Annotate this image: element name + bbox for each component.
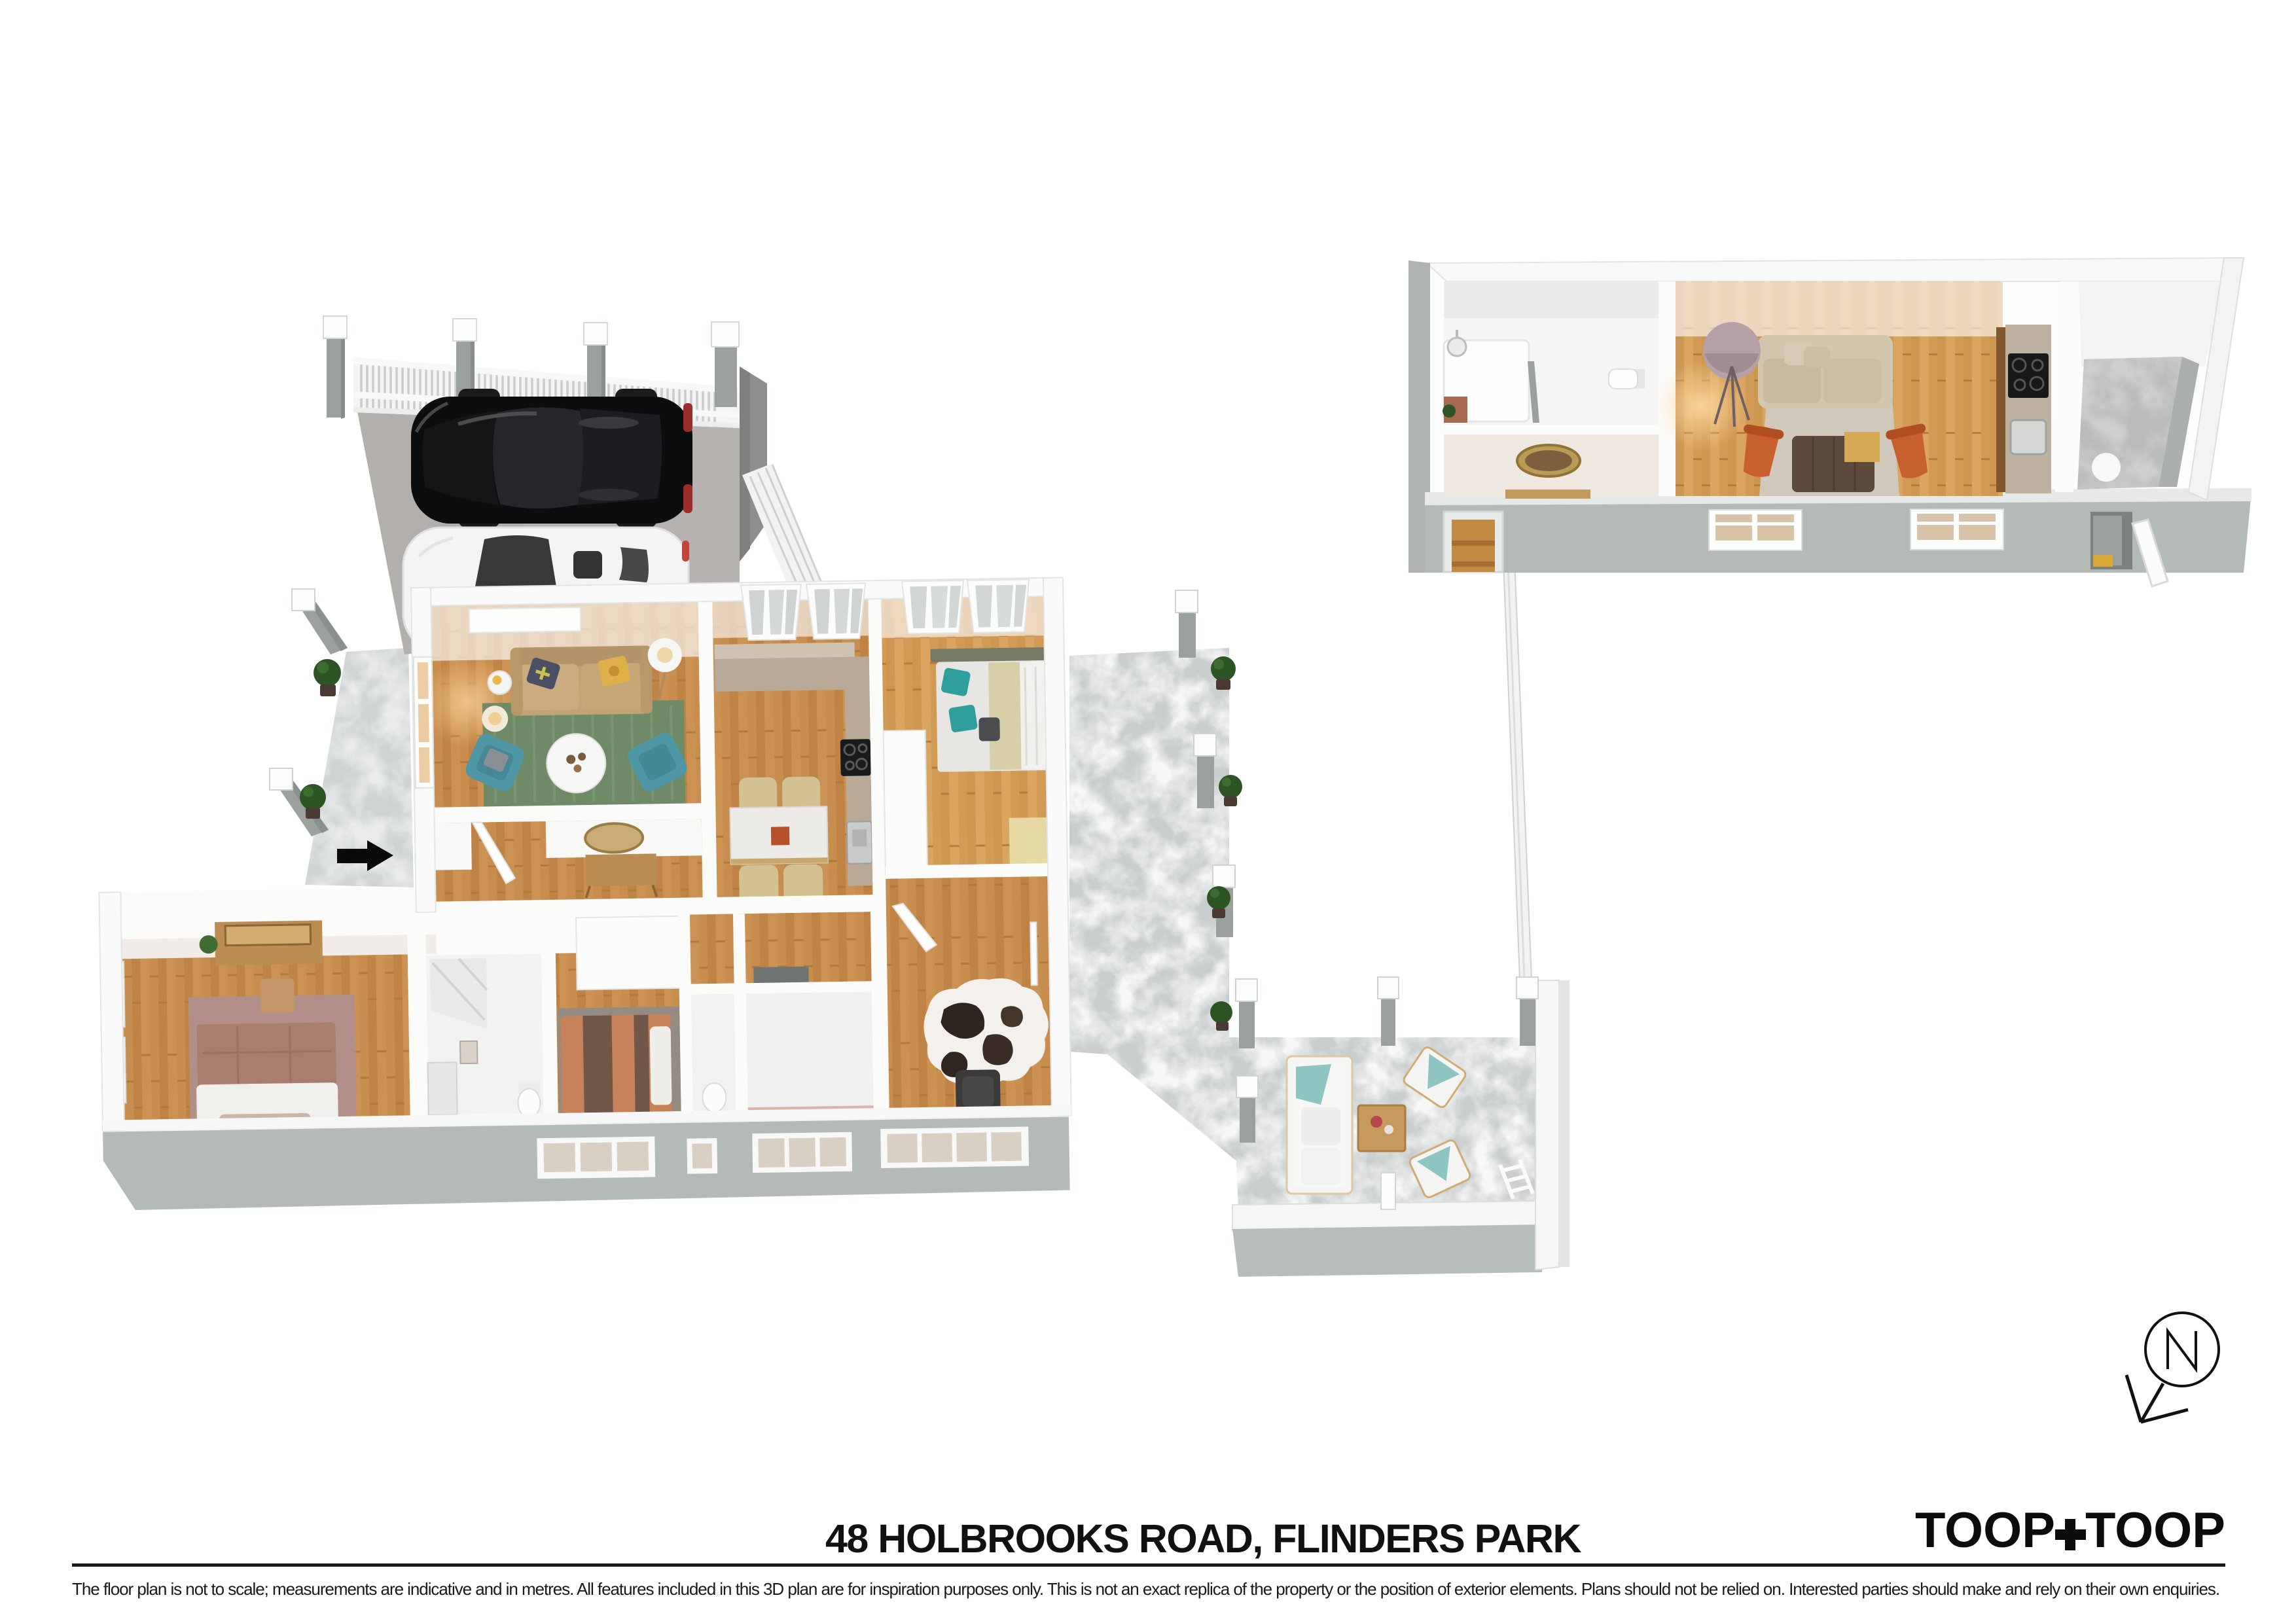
svg-text:48 HOLBROOKS ROAD, FLINDERS PA: 48 HOLBROOKS ROAD, FLINDERS PARK: [825, 1516, 1581, 1561]
svg-text:The floor plan is not to scale: The floor plan is not to scale; measurem…: [72, 1579, 2219, 1599]
svg-text:TOOP: TOOP: [2085, 1503, 2225, 1558]
svg-text:TOOP: TOOP: [1915, 1503, 2055, 1558]
